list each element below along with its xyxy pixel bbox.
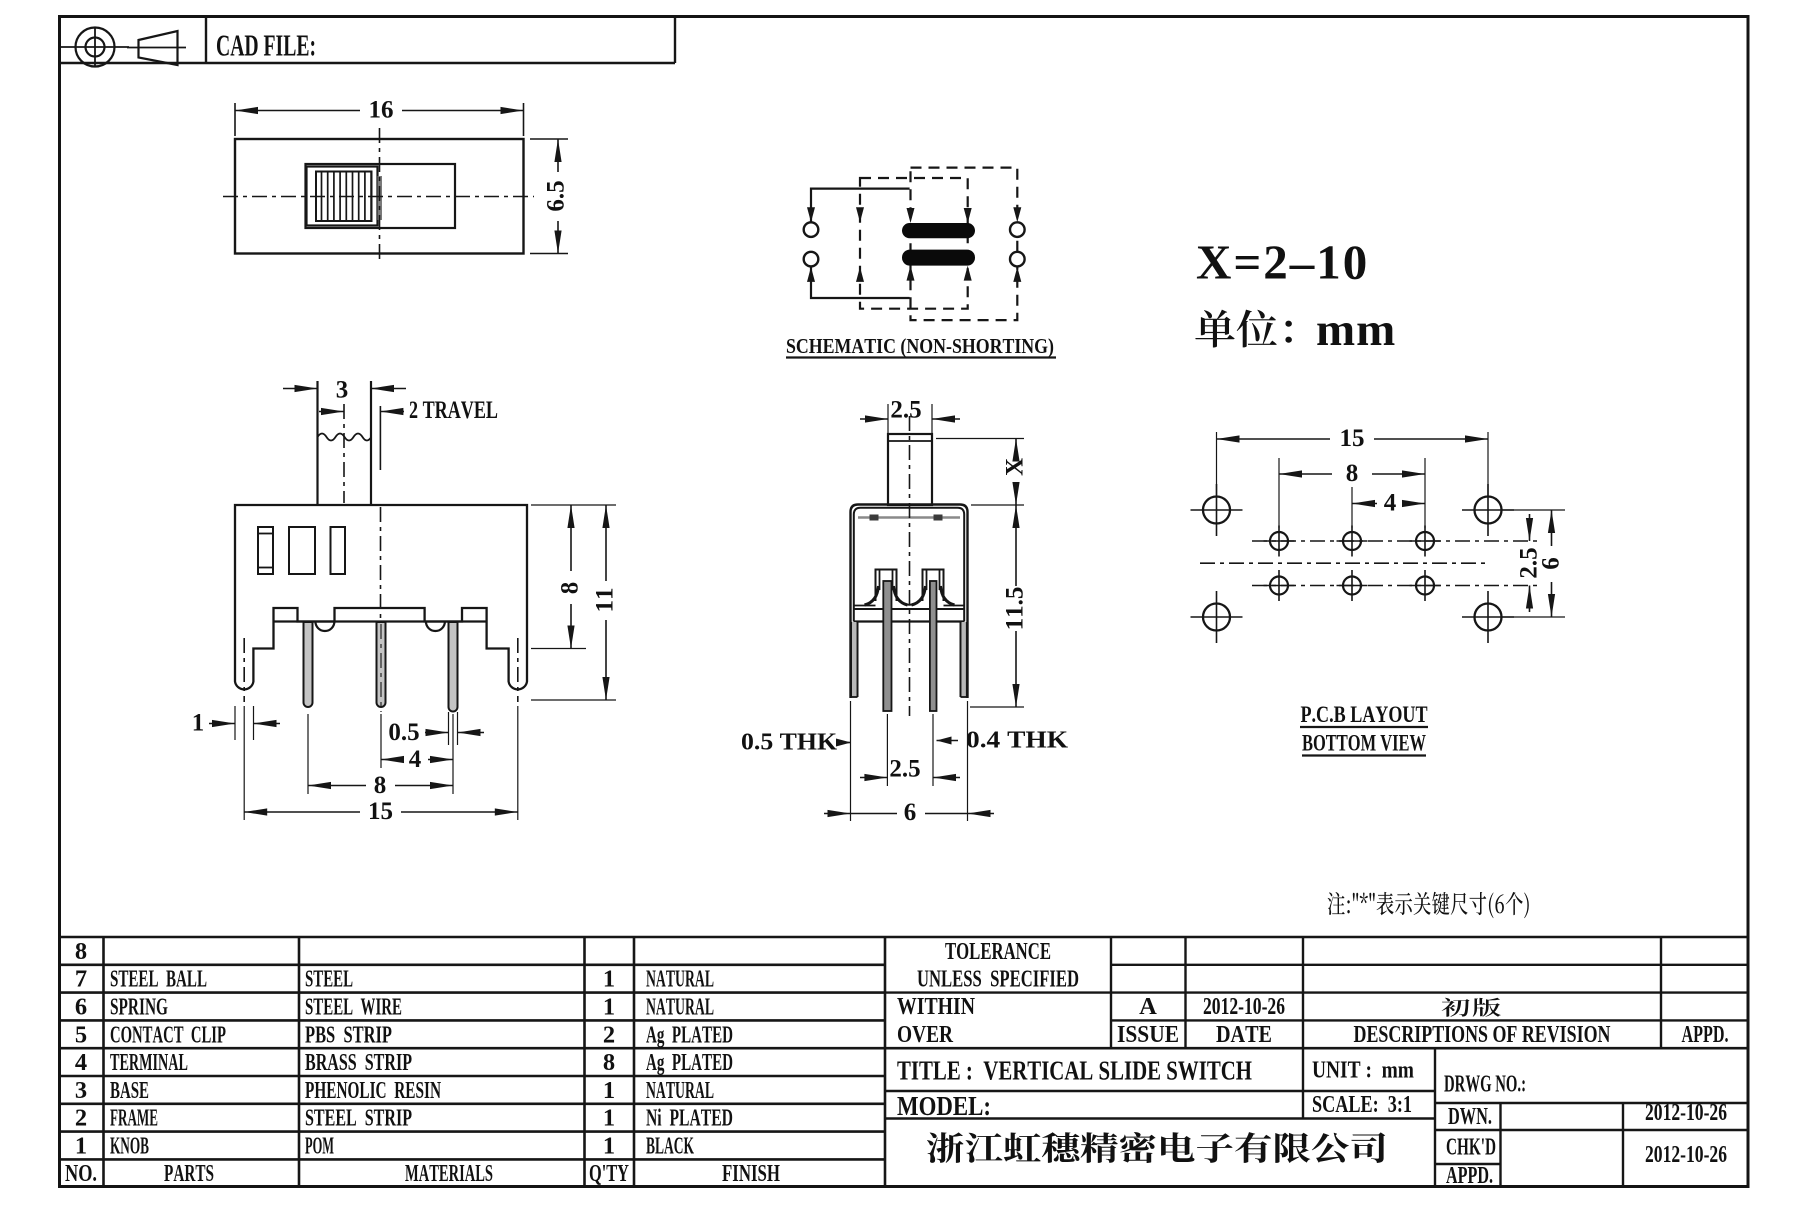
svg-text:1: 1 [603,994,615,1021]
svg-text:3: 3 [336,377,349,404]
svg-text:4: 4 [1384,490,1397,517]
svg-text:DESCRIPTIONS OF REVISION: DESCRIPTIONS OF REVISION [1354,1021,1611,1048]
svg-text:1: 1 [192,710,205,737]
svg-text:Q'TY: Q'TY [589,1160,629,1187]
svg-text:Ag PLATED: Ag PLATED [646,1049,733,1076]
svg-text:PARTS: PARTS [164,1160,214,1187]
svg-text:Ni PLATED: Ni PLATED [646,1105,733,1132]
svg-text:BLACK: BLACK [646,1133,694,1160]
svg-text:STEEL STRIP: STEEL STRIP [305,1105,412,1132]
svg-text:mm: mm [1316,304,1396,356]
svg-text:UNIT : mm: UNIT : mm [1312,1057,1414,1084]
svg-text:2: 2 [75,1105,87,1132]
svg-text:DATE: DATE [1216,1021,1272,1048]
svg-text:7: 7 [75,966,87,993]
svg-text:0.4 THK: 0.4 THK [966,728,1068,754]
svg-text:KNOB: KNOB [110,1133,149,1160]
svg-text:6: 6 [75,994,87,1021]
svg-text:DRWG NO.:: DRWG NO.: [1444,1071,1526,1098]
svg-text:DWN.: DWN. [1448,1103,1492,1130]
svg-text:1: 1 [75,1133,87,1160]
svg-text:2: 2 [603,1021,615,1048]
svg-text:8: 8 [603,1049,615,1076]
svg-text:NATURAL: NATURAL [646,994,714,1021]
svg-text:X=2–10: X=2–10 [1196,235,1369,290]
svg-text:8: 8 [75,938,87,965]
svg-text:MATERIALS: MATERIALS [405,1160,493,1187]
svg-text:UNLESS SPECIFIED: UNLESS SPECIFIED [917,966,1079,993]
svg-text:11.5: 11.5 [1002,587,1029,631]
svg-text:1: 1 [603,966,615,993]
svg-text:8: 8 [557,582,584,595]
svg-text:0.5 THK: 0.5 THK [741,730,837,756]
svg-text:0.5: 0.5 [388,719,419,746]
svg-text:8: 8 [374,772,387,799]
svg-text:SCHEMATIC (NON-SHORTING): SCHEMATIC (NON-SHORTING) [786,334,1054,358]
svg-text:1: 1 [603,1077,615,1104]
svg-text:A: A [1139,993,1157,1020]
svg-text:4: 4 [409,746,422,773]
svg-text:3: 3 [75,1077,87,1104]
svg-text:NO.: NO. [65,1160,97,1187]
svg-text:15: 15 [1340,425,1365,452]
svg-text:PHENOLIC RESIN: PHENOLIC RESIN [305,1077,441,1104]
svg-text:TERMINAL: TERMINAL [110,1049,188,1076]
svg-text:APPD.: APPD. [1682,1021,1729,1048]
svg-text:2012-10-26: 2012-10-26 [1203,993,1285,1020]
svg-text:BOTTOM VIEW: BOTTOM VIEW [1302,731,1426,757]
svg-text:TITLE : VERTICAL SLIDE SWITCH: TITLE : VERTICAL SLIDE SWITCH [897,1055,1252,1086]
svg-text:FINISH: FINISH [722,1160,780,1187]
svg-text:2 TRAVEL: 2 TRAVEL [409,397,498,424]
svg-text:16: 16 [369,97,394,124]
svg-text:8: 8 [1346,460,1359,487]
svg-text:OVER: OVER [897,1021,953,1048]
svg-text:SPRING: SPRING [110,994,168,1021]
svg-text:2012-10-26: 2012-10-26 [1645,1099,1727,1126]
svg-text:1: 1 [603,1105,615,1132]
svg-text:Ag PLATED: Ag PLATED [646,1021,733,1048]
svg-text:6: 6 [904,799,917,826]
svg-text:2.5: 2.5 [889,756,920,783]
svg-text:PBS STRIP: PBS STRIP [305,1021,392,1048]
svg-text:BRASS STRIP: BRASS STRIP [305,1049,412,1076]
svg-text:APPD.: APPD. [1446,1162,1493,1189]
svg-text:WITHIN: WITHIN [897,993,975,1020]
svg-text:NATURAL: NATURAL [646,966,714,993]
svg-text:P.C.B LAYOUT: P.C.B LAYOUT [1301,702,1428,728]
svg-text:STEEL WIRE: STEEL WIRE [305,994,402,1021]
svg-text:5: 5 [75,1021,87,1048]
svg-text:4: 4 [75,1049,87,1076]
svg-text:6: 6 [1538,557,1565,570]
svg-text:2.5: 2.5 [890,397,921,424]
svg-text:2012-10-26: 2012-10-26 [1645,1141,1727,1168]
svg-text:6.5: 6.5 [543,180,570,211]
svg-text:11: 11 [592,588,619,613]
svg-text:1: 1 [603,1133,615,1160]
svg-text:CONTACT CLIP: CONTACT CLIP [110,1021,226,1048]
svg-text:NATURAL: NATURAL [646,1077,714,1104]
svg-text:POM: POM [305,1133,334,1160]
svg-text:TOLERANCE: TOLERANCE [945,938,1051,965]
svg-text:FRAME: FRAME [110,1105,158,1132]
svg-text:CHK'D: CHK'D [1446,1134,1496,1161]
svg-text:STEEL BALL: STEEL BALL [110,966,207,993]
svg-text:CAD FILE:: CAD FILE: [216,28,316,63]
svg-text:STEEL: STEEL [305,966,353,993]
svg-text:15: 15 [368,798,393,825]
svg-text:BASE: BASE [110,1077,149,1104]
svg-text:MODEL:: MODEL: [897,1091,991,1121]
svg-text:ISSUE: ISSUE [1117,1021,1179,1048]
svg-text:SCALE: 3:1: SCALE: 3:1 [1312,1091,1412,1118]
svg-text:X: X [1002,458,1029,476]
